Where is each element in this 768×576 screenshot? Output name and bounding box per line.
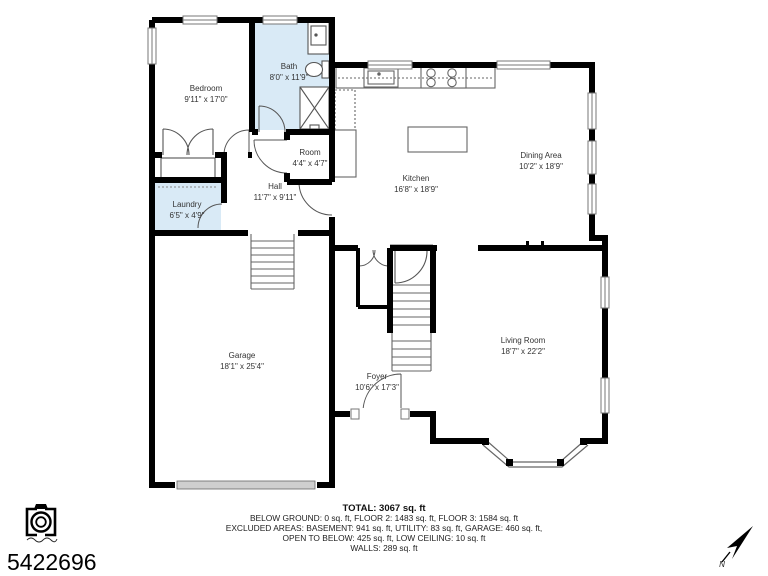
window (368, 61, 412, 69)
room-label-garage: Garage 18'1" x 25'4" (220, 351, 264, 371)
vanity-sink-icon (308, 22, 329, 54)
room-dims: 11'7" x 9'11" (254, 193, 297, 202)
hall-kitchen-door-arc (299, 182, 332, 215)
room-name: Foyer (367, 372, 388, 381)
room-label-room: Room 4'4" x 4'7" (293, 148, 328, 168)
kitchen-fixtures (334, 67, 495, 177)
room-dims: 4'4" x 4'7" (293, 159, 328, 168)
garage-door (175, 480, 317, 491)
room-label-living: Living Room 18'7" x 22'2" (501, 336, 546, 356)
window (588, 184, 596, 214)
summary-line: BELOW GROUND: 0 sq. ft, FLOOR 2: 1483 sq… (250, 513, 519, 523)
room-name: Living Room (501, 336, 546, 345)
shower-icon (300, 87, 329, 129)
summary-line: OPEN TO BELOW: 425 sq. ft, LOW CEILING: … (283, 533, 487, 543)
sidelite-window (401, 409, 409, 419)
opening-ticks (526, 241, 544, 245)
room-name: Laundry (173, 200, 202, 209)
window (588, 141, 596, 174)
closet-icon (161, 129, 215, 178)
front-door (350, 408, 410, 420)
window (601, 277, 609, 308)
room-name: Garage (229, 351, 256, 360)
room-dims: 6'5" x 4'9" (170, 211, 205, 220)
kitchen-side-counter (334, 130, 356, 177)
north-arrow-icon: N (719, 526, 753, 569)
upper-cabinet-dashed-box (335, 90, 355, 130)
stairs-main-icon (251, 234, 294, 289)
room-door-arc (254, 140, 287, 173)
window (263, 16, 297, 24)
camera-logo-icon (27, 504, 57, 542)
window (183, 16, 217, 24)
room-name: Bath (281, 62, 297, 71)
window (588, 93, 596, 129)
double-door-closet (359, 250, 389, 266)
summary-line: EXCLUDED AREAS: BASEMENT: 941 sq. ft, UT… (226, 523, 543, 533)
bay-window (482, 438, 588, 467)
room-name: Room (299, 148, 321, 157)
room-dims: 18'1" x 25'4" (220, 362, 264, 371)
room-dims: 10'6" x 17'3" (355, 383, 399, 392)
summary-line: WALLS: 289 sq. ft (350, 543, 418, 553)
bedroom-door-arc (224, 130, 249, 155)
listing-id: 5422696 (7, 549, 97, 575)
sidelite-window (351, 409, 359, 419)
room-name: Kitchen (403, 174, 430, 183)
logo-script-squiggle (27, 538, 57, 542)
kitchen-island (408, 127, 467, 152)
room-dims: 16'8" x 18'9" (394, 185, 438, 194)
window (148, 28, 156, 64)
room-labels: Bedroom 9'11" x 17'0" Bath 8'0" x 11'9" … (170, 62, 564, 392)
sink-icon (364, 68, 398, 87)
room-label-kitchen: Kitchen 16'8" x 18'9" (394, 174, 438, 194)
compass-label: N (719, 560, 725, 569)
room-dims: 18'7" x 22'2" (501, 347, 545, 356)
room-name: Bedroom (190, 84, 223, 93)
window (497, 61, 550, 69)
window (601, 378, 609, 413)
room-label-bedroom: Bedroom 9'11" x 17'0" (184, 84, 227, 104)
room-name: Dining Area (520, 151, 562, 160)
room-dims: 9'11" x 17'0" (184, 95, 227, 104)
room-dims: 8'0" x 11'9" (270, 73, 309, 82)
area-summary: TOTAL: 3067 sq. ft BELOW GROUND: 0 sq. f… (226, 503, 543, 553)
floor-plan-canvas: Bedroom 9'11" x 17'0" Bath 8'0" x 11'9" … (0, 0, 768, 576)
toilet-icon (306, 61, 330, 78)
room-dims: 10'2" x 18'9" (519, 162, 563, 171)
stairs-foyer-icon (390, 245, 433, 371)
room-label-dining: Dining Area 10'2" x 18'9" (519, 151, 563, 171)
floor-plan-page: Bedroom 9'11" x 17'0" Bath 8'0" x 11'9" … (0, 0, 768, 576)
room-name: Hall (268, 182, 282, 191)
